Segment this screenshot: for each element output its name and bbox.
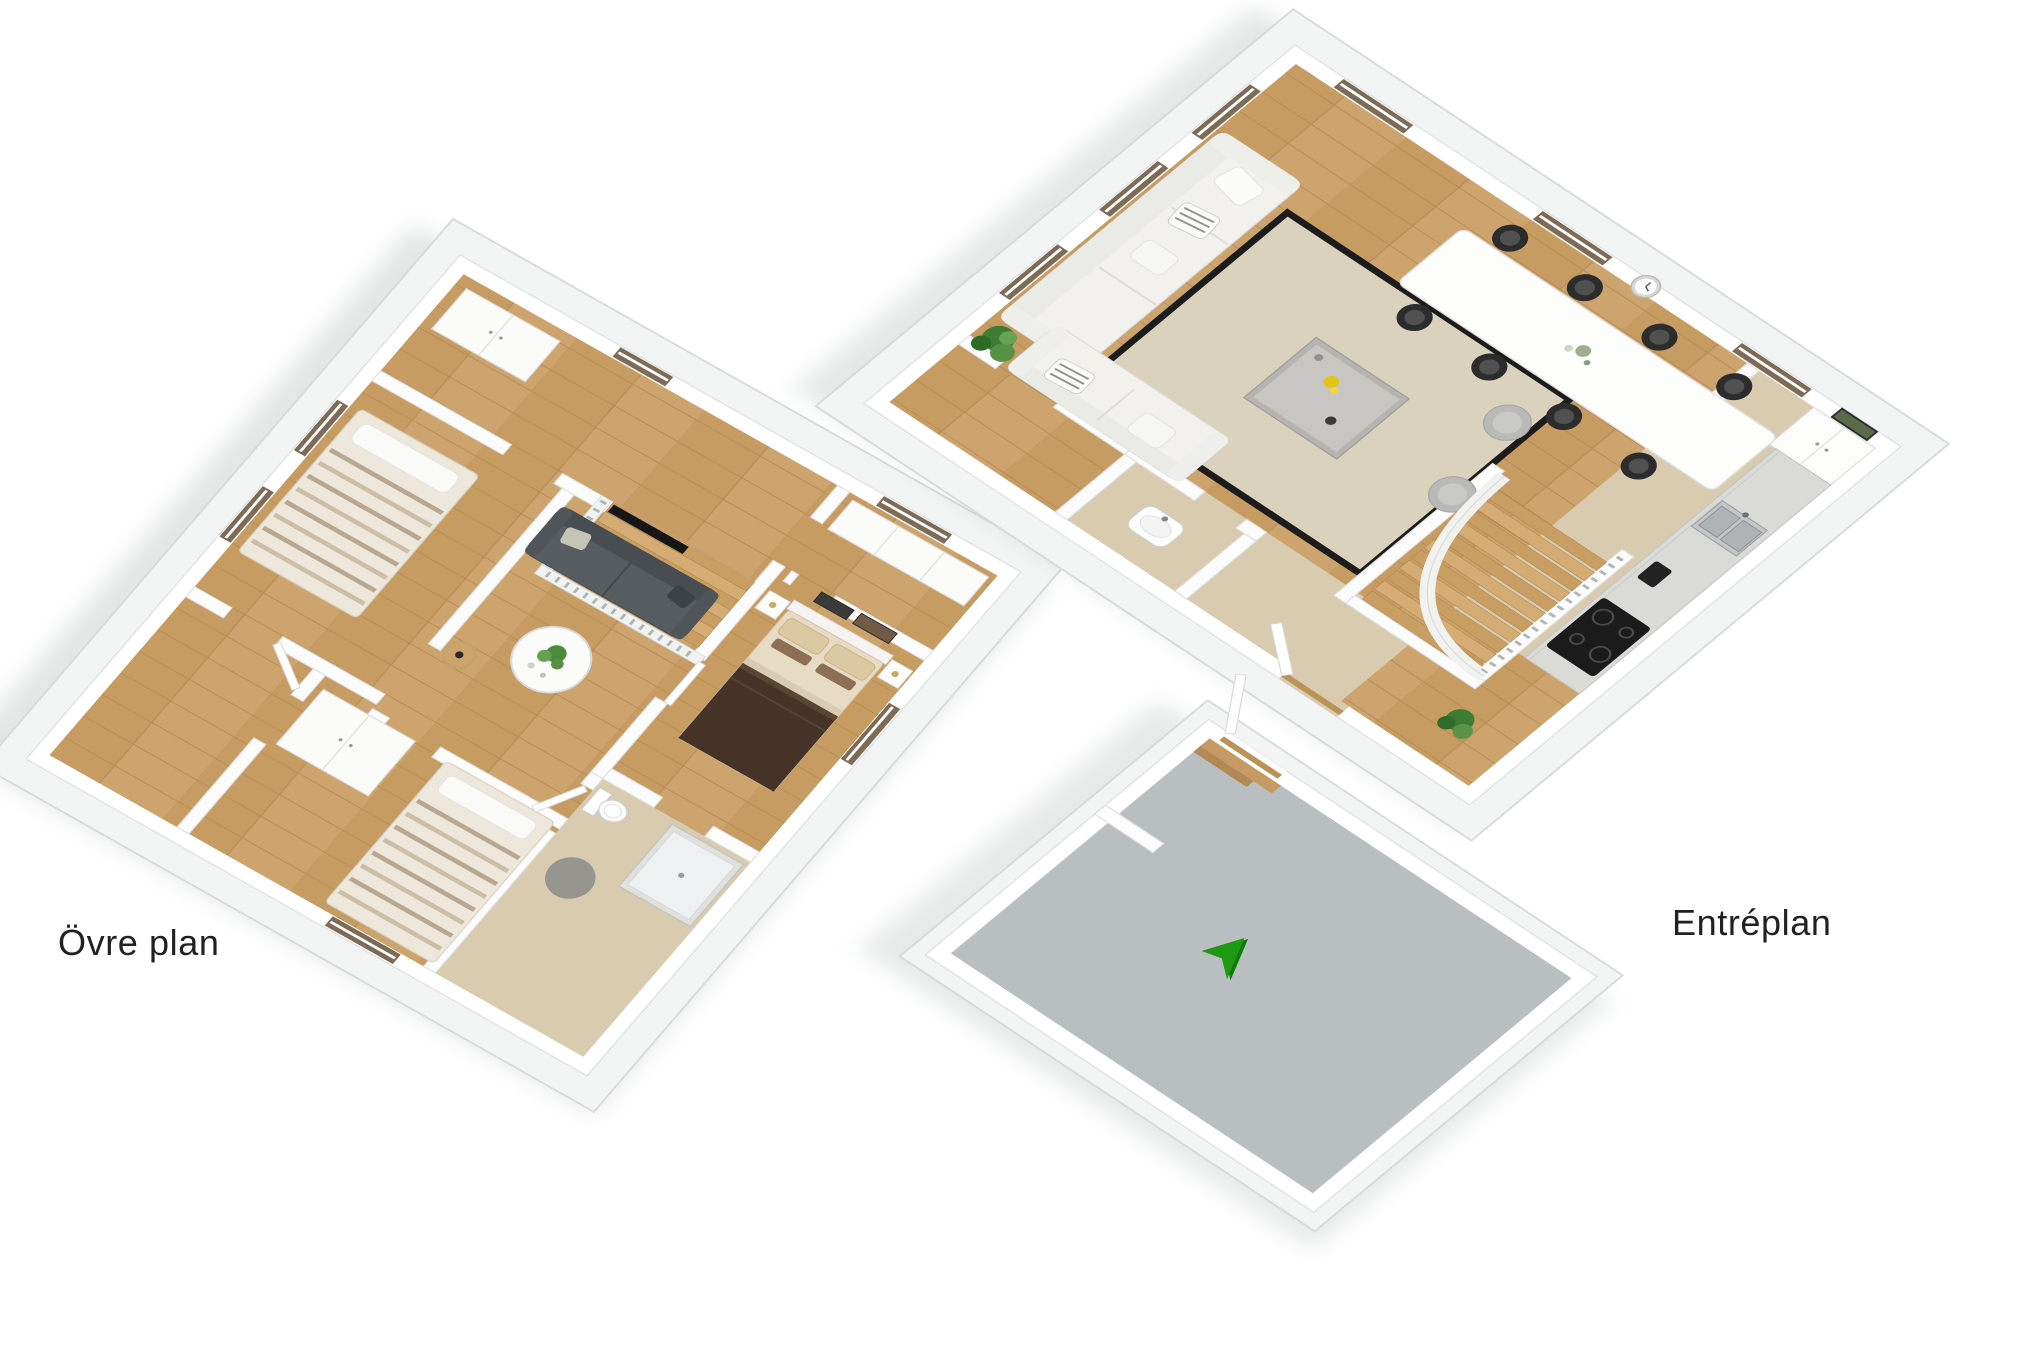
label-entreplan: Entréplan	[1672, 902, 1832, 944]
label-ovre-plan: Övre plan	[58, 922, 219, 964]
floor-plan-image: Övre plan Entréplan ➤	[0, 0, 2043, 1365]
floor-plan-scene	[0, 0, 2043, 1365]
